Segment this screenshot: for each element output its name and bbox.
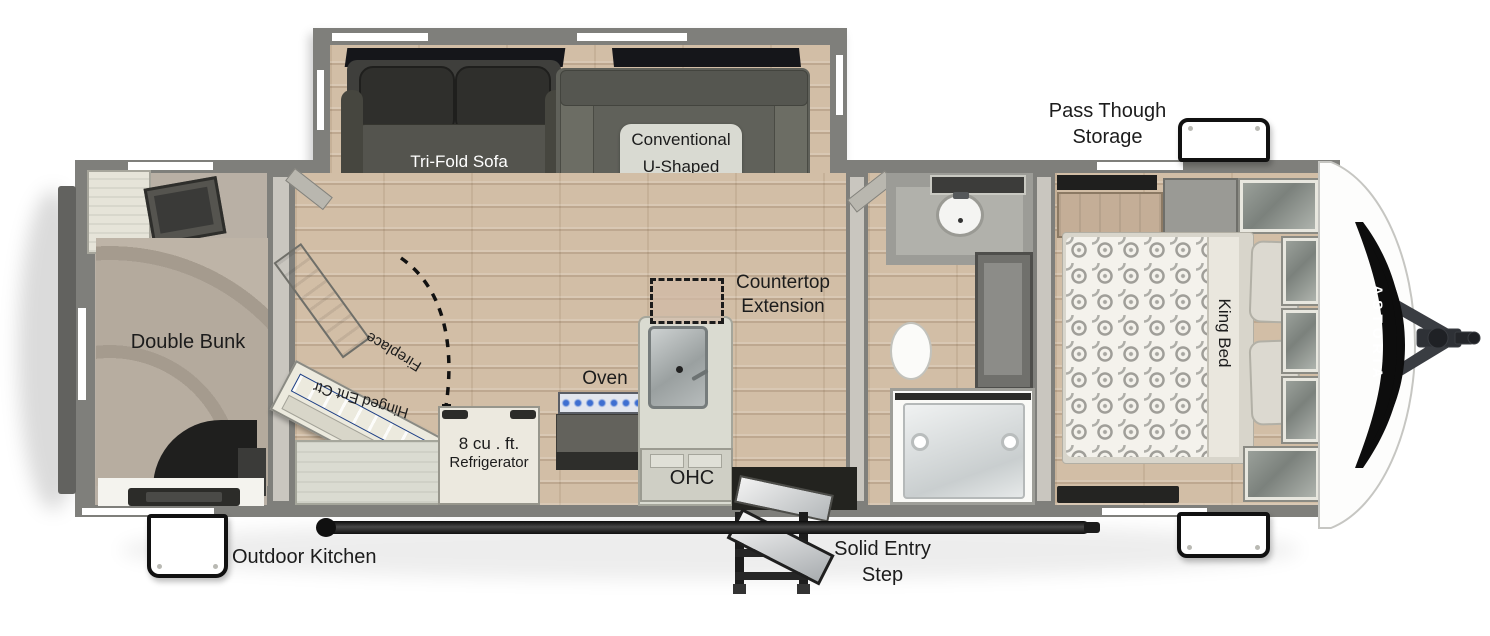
tri-fold-sofa-label: Tri-Fold Sofa <box>398 152 520 172</box>
step-foot <box>797 584 810 594</box>
bath-faucet <box>953 192 969 199</box>
oven-range <box>556 392 644 472</box>
cooktop-burners <box>558 392 640 414</box>
window-behind-dinette <box>612 48 801 67</box>
entry-step-label-line2: Step <box>820 563 945 587</box>
left-wall-window <box>78 308 86 400</box>
shower-jet <box>911 433 929 451</box>
outdoor-kitchen-door <box>147 514 228 578</box>
oven-label: Oven <box>576 368 634 391</box>
bunk-living-wall <box>267 173 295 505</box>
bath-sink <box>936 193 984 237</box>
dinette-label-line1: Conventional <box>620 130 742 150</box>
shower-glass <box>895 393 1031 400</box>
bedroom-media-console <box>1057 486 1179 503</box>
outdoor-kitchen-griddle <box>128 488 240 506</box>
refrigerator-label-line1: 8 cu . ft. <box>440 434 538 454</box>
step-foot <box>733 584 746 594</box>
double-bunk-label: Double Bunk <box>118 330 258 354</box>
shower <box>890 388 1035 505</box>
bedroom-tv <box>1057 175 1157 190</box>
refrigerator-label-line2: Refrigerator <box>440 454 538 472</box>
awning-tube <box>325 521 1090 534</box>
front-cap <box>1305 150 1490 550</box>
outdoor-kitchen-label: Outdoor Kitchen <box>232 545 392 569</box>
slideout-window-left <box>332 33 428 41</box>
countertop-extension-label-line2: Extension <box>722 296 844 319</box>
oven-body <box>556 414 644 454</box>
sink-faucet <box>691 369 709 381</box>
entry-doorway <box>732 467 857 510</box>
refrigerator: 8 cu . ft. Refrigerator <box>438 406 540 505</box>
griddle-plate <box>146 492 222 502</box>
linen-cabinet-panel <box>984 263 1022 375</box>
sink-drain <box>676 366 683 373</box>
bunk-living-wall-face <box>273 177 289 501</box>
slideout-sidewindow-right <box>836 55 843 115</box>
bath-linen-cabinet <box>975 252 1033 390</box>
pass-through-label-line1: Pass Though <box>1040 99 1175 123</box>
bunk-top-window <box>128 162 213 170</box>
king-bed-label: King Bed <box>1210 287 1234 379</box>
screw <box>157 564 162 569</box>
screw <box>1187 545 1192 550</box>
countertop-extension-label-line1: Countertop <box>722 272 844 295</box>
screw <box>1255 545 1260 550</box>
countertop-extension <box>650 278 724 324</box>
kitchen-counter <box>295 440 443 505</box>
awning-end-cap-right <box>1084 522 1100 533</box>
entry-step-label-line1: Solid Entry <box>820 537 945 561</box>
bath-bedroom-wall-face <box>1037 177 1051 501</box>
slideout-window-right <box>577 33 687 41</box>
astoria-brand-label: ASTORIA <box>1362 228 1386 440</box>
king-bed-mattress-quilt <box>1066 237 1207 457</box>
screw <box>1188 126 1193 131</box>
fridge-hinge-left <box>442 410 468 419</box>
bedroom-top-window <box>1097 162 1183 170</box>
ohc-label: OHC <box>662 466 722 490</box>
rv-floorplan: Tri-Fold Sofa Conventional U-Shaped Dine… <box>0 0 1490 636</box>
bedroom-nightstand <box>1163 178 1238 238</box>
bath-mirror <box>930 175 1026 195</box>
bath-sink-drain <box>958 218 963 223</box>
pass-through-label-line2: Storage <box>1040 125 1175 149</box>
dinette-bench-back <box>560 70 808 106</box>
fridge-hinge-right <box>510 410 536 419</box>
pass-through-door-top <box>1178 118 1270 162</box>
awning-end-cap-left <box>316 518 336 537</box>
oven-drawer <box>556 452 642 470</box>
kitchen-sink <box>648 326 708 409</box>
shower-pan <box>903 403 1025 499</box>
slideout-sidewindow-left <box>317 70 324 130</box>
pass-through-door-bottom <box>1177 512 1270 558</box>
rear-bumper <box>58 186 76 494</box>
bath-bedroom-wall <box>1033 173 1055 505</box>
kitchen-bath-wall-face <box>850 177 864 501</box>
kitchen-bath-wall <box>846 173 868 505</box>
screw <box>213 564 218 569</box>
toilet <box>890 322 932 380</box>
bunk-tv-screen <box>154 187 214 234</box>
screw <box>1255 126 1260 131</box>
shower-jet <box>1001 433 1019 451</box>
